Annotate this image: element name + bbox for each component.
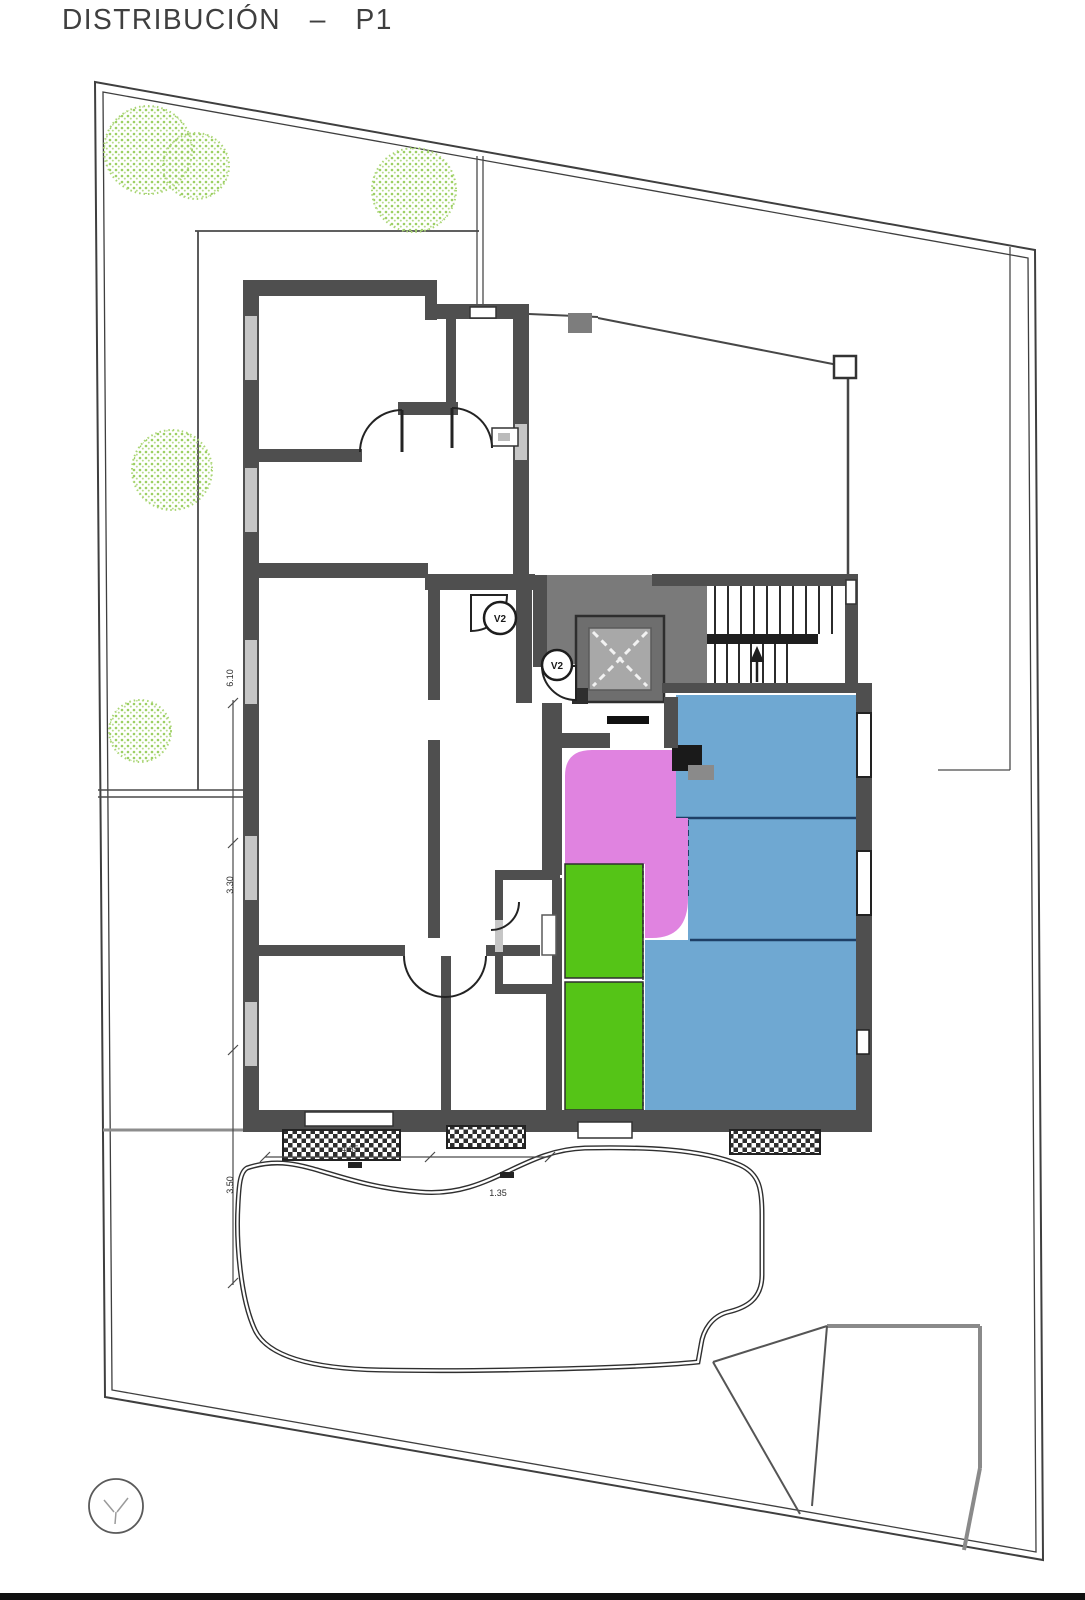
bathroom-fixture [542, 915, 556, 955]
zone-blue-room-1 [676, 695, 856, 818]
svg-text:V2: V2 [551, 661, 564, 672]
patio-lines [713, 1326, 980, 1550]
sheet-bottom-edge [0, 1593, 1085, 1600]
tree-icon [132, 430, 212, 510]
zone-green-room-1 [565, 864, 643, 978]
svg-text:3.50: 3.50 [225, 1176, 235, 1194]
floor-plan-svg: V2 V2 [0, 0, 1085, 1600]
zone-blue-room-2 [688, 818, 856, 940]
drawing-sheet: DISTRIBUCIÓN – P1 [0, 0, 1085, 1600]
zone-green-room-2 [565, 982, 643, 1110]
north-symbol-icon [89, 1479, 143, 1533]
staircase [707, 586, 845, 683]
svg-text:1.35: 1.35 [489, 1188, 507, 1198]
tree-icon [163, 133, 229, 199]
svg-text:6.10: 6.10 [225, 669, 235, 687]
svg-text:4.35: 4.35 [341, 1144, 359, 1154]
tree-icon [372, 148, 456, 232]
bathroom-block [495, 870, 562, 994]
svg-text:3.30: 3.30 [225, 876, 235, 894]
terrace-post [834, 356, 856, 378]
zone-green-rooms [565, 864, 643, 1110]
zone-blue-room-3 [645, 940, 856, 1110]
svg-text:V2: V2 [494, 614, 507, 625]
step-marker [607, 716, 649, 724]
door-arcs [360, 408, 576, 997]
elevator [572, 616, 664, 704]
terrace-lines [529, 314, 848, 578]
pool-curve [238, 1148, 762, 1371]
tree-icon [109, 700, 171, 762]
